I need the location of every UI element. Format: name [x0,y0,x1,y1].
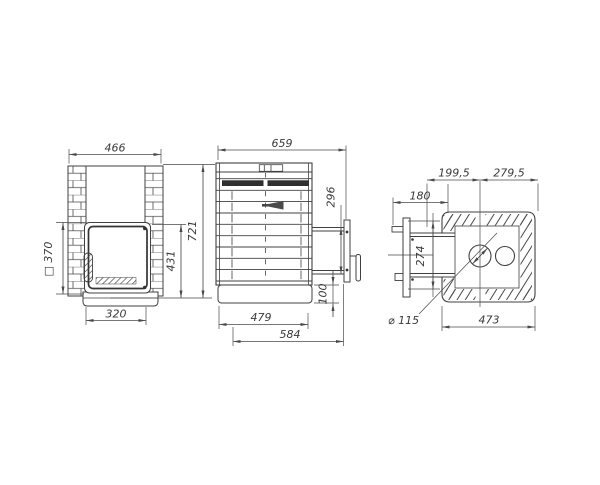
dim-side-overall-depth: 584 [280,328,301,341]
latch-top-view [395,274,403,281]
stones-band-bottom [446,289,532,300]
handle-top-view [392,227,403,233]
flange-screw-bottom [346,269,349,272]
dim-side-body-depth: 479 [251,311,272,324]
flange-screw-top [346,231,349,234]
secondary-outlet [496,247,515,266]
stove-base-side [218,285,312,303]
door-hinge-top [143,227,146,230]
dim-front-door-height: 431 [165,251,178,272]
handle-side [356,255,361,282]
dim-top-frame-width: 274 [414,246,427,267]
drawing-canvas: 466 □ 370 320 431 721 [0,0,600,485]
flange-screw-a [411,238,414,241]
dim-front-total-width: 466 [105,142,126,155]
dim-front-base-width: 320 [106,308,127,321]
dim-front-opening: □ 370 [42,242,55,277]
dim-top-tunnel-length: 180 [410,190,431,203]
dim-top-total-width: 473 [479,314,500,327]
dim-top-left-offset: 199,5 [438,167,470,180]
brick-column-left [68,166,86,296]
stones-band-top [446,214,532,226]
ash-vent-grille [96,278,136,285]
front-view: 466 □ 370 320 431 721 [42,142,215,326]
top-view: 199,5 279,5 180 274 ⌀ 115 473 [388,167,538,332]
louver-slot-right [268,180,310,186]
dim-side-base-height: 100 [317,284,330,305]
dim-top-chimney-diameter: ⌀ 115 [388,314,419,327]
stove-technical-drawing: 466 □ 370 320 431 721 [0,0,600,485]
stones-band-right [521,214,533,300]
stones-band-left-top [444,215,456,231]
dim-side-frame-height: 296 [325,187,338,208]
door-handle [84,253,93,282]
side-view: 659 296 100 479 584 [216,137,361,346]
stove-base-front [83,292,158,306]
dim-side-total-depth: 659 [272,137,293,150]
louver-slot-left [222,180,264,186]
door-flange-top [403,218,410,297]
stones-band-left-bottom [444,279,456,298]
dim-front-total-height: 721 [186,221,199,242]
door-flange-side [344,220,350,282]
dim-top-right-offset: 279,5 [493,167,525,180]
flange-screw-b [411,278,414,281]
door-hinge-bottom [143,286,146,289]
